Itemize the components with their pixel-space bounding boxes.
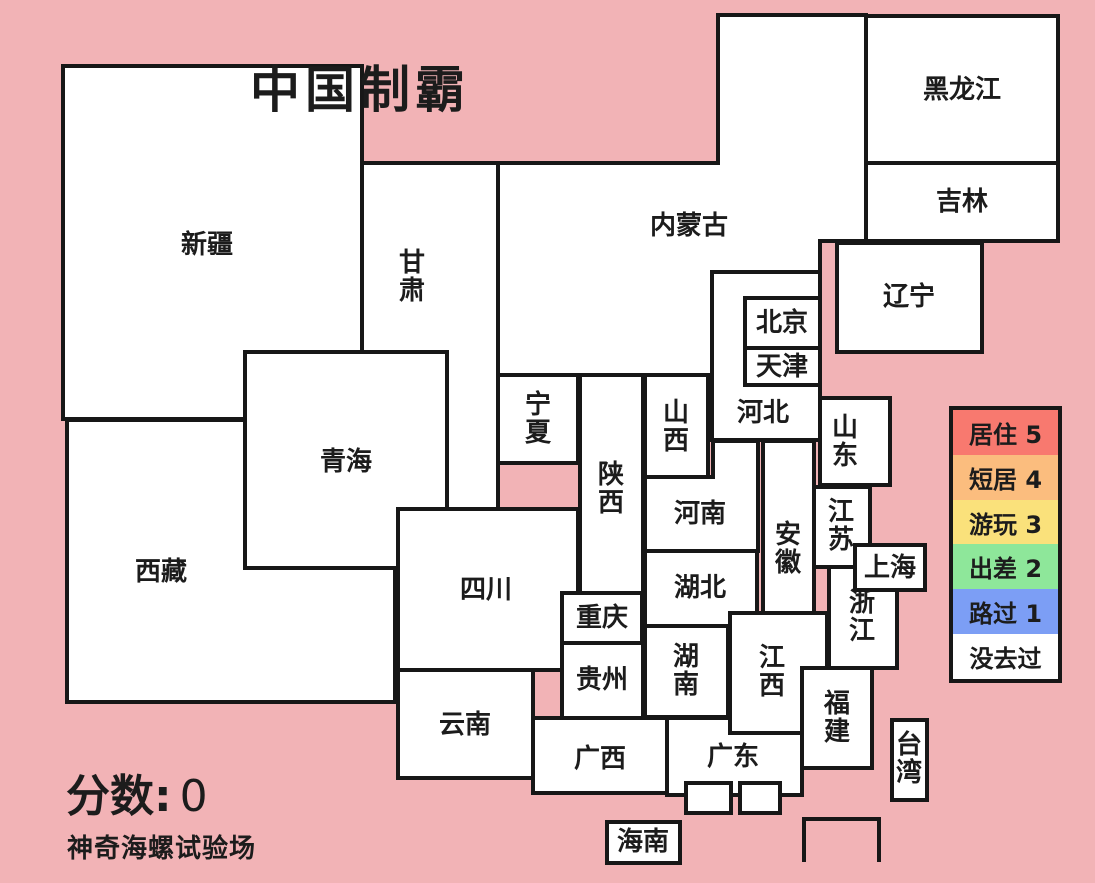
province-unlabeled-box-west[interactable] xyxy=(686,783,731,813)
province-label-gansu: 甘肃 xyxy=(399,248,425,306)
province-guizhou[interactable]: 贵州 xyxy=(562,643,643,718)
province-jilin[interactable]: 吉林 xyxy=(866,163,1058,241)
province-label-shaanxi: 陕西 xyxy=(598,460,624,518)
province-beijing[interactable]: 北京 xyxy=(745,298,820,348)
province-yunnan[interactable]: 云南 xyxy=(398,670,533,778)
province-label-qinghai: 青海 xyxy=(320,447,372,477)
province-chongqing[interactable]: 重庆 xyxy=(562,593,642,643)
province-guangxi[interactable]: 广西 xyxy=(533,718,668,793)
province-unlabeled-box-east-shape[interactable] xyxy=(740,783,780,813)
province-label-xizang: 西藏 xyxy=(135,557,187,587)
province-label-henan: 河南 xyxy=(674,499,726,529)
province-label-zhejiang: 浙江 xyxy=(849,588,875,646)
province-taiwan[interactable]: 台湾 xyxy=(892,720,927,800)
province-label-shanghai: 上海 xyxy=(864,553,916,583)
province-label-hubei: 湖北 xyxy=(674,573,726,603)
province-anhui[interactable]: 安徽 xyxy=(763,441,814,613)
province-label-jiangsu: 江苏 xyxy=(828,497,854,555)
legend-row-live-5: 居住 5 xyxy=(953,410,1058,455)
legend-row-trip-2: 出差 2 xyxy=(953,544,1058,589)
legend: 居住 5 短居 4 游玩 3 出差 2 路过 1 没去过 xyxy=(949,406,1062,683)
china-map: 甘肃西藏新疆青海内蒙古宁夏陕西山西四川河南湖北重庆贵州云南广西广东河北北京天津山… xyxy=(0,0,1095,883)
province-label-jiangxi: 江西 xyxy=(759,643,785,701)
province-label-chongqing: 重庆 xyxy=(576,602,628,633)
legend-row-never: 没去过 xyxy=(953,634,1058,679)
province-tianjin[interactable]: 天津 xyxy=(745,348,820,385)
province-label-liaoning: 辽宁 xyxy=(883,281,935,312)
province-label-fujian: 福建 xyxy=(823,689,850,747)
score-label: 分数: xyxy=(66,771,172,822)
province-ningxia[interactable]: 宁夏 xyxy=(498,375,578,463)
province-unlabeled-box-west-shape[interactable] xyxy=(686,783,731,813)
province-label-shandong: 山东 xyxy=(832,413,858,471)
province-hunan[interactable]: 湖南 xyxy=(645,626,728,717)
province-label-guizhou: 贵州 xyxy=(576,665,628,695)
province-label-taiwan: 台湾 xyxy=(896,729,922,788)
province-liaoning[interactable]: 辽宁 xyxy=(837,243,982,352)
province-label-xinjiang: 新疆 xyxy=(181,229,233,260)
province-label-neimenggu: 内蒙古 xyxy=(650,211,728,241)
province-label-hainan: 海南 xyxy=(617,827,669,857)
page-title: 中国制霸 xyxy=(0,50,720,122)
legend-row-stay-4: 短居 4 xyxy=(953,455,1058,500)
province-label-guangdong: 广东 xyxy=(707,741,759,772)
province-unlabeled-box-east[interactable] xyxy=(740,783,780,813)
province-hainan[interactable]: 海南 xyxy=(607,822,680,863)
province-label-sichuan: 四川 xyxy=(460,575,512,605)
legend-row-pass-1: 路过 1 xyxy=(953,589,1058,634)
province-label-tianjin: 天津 xyxy=(756,352,808,382)
province-sichuan[interactable]: 四川 xyxy=(398,509,578,670)
game-stage: 甘肃西藏新疆青海内蒙古宁夏陕西山西四川河南湖北重庆贵州云南广西广东河北北京天津山… xyxy=(0,0,1095,883)
province-label-ningxia: 宁夏 xyxy=(525,389,552,448)
province-shanghai[interactable]: 上海 xyxy=(855,545,925,590)
province-label-hunan: 湖南 xyxy=(673,642,699,700)
sea-box-outline xyxy=(804,819,879,862)
province-label-jilin: 吉林 xyxy=(936,187,988,217)
province-label-beijing: 北京 xyxy=(756,307,808,338)
subtitle: 神奇海螺试验场 xyxy=(67,828,256,865)
legend-row-visit-3: 游玩 3 xyxy=(953,500,1058,545)
province-label-shanxi: 山西 xyxy=(663,398,689,456)
province-fujian[interactable]: 福建 xyxy=(802,668,872,768)
province-shandong[interactable]: 山东 xyxy=(820,398,890,485)
province-shaanxi[interactable]: 陕西 xyxy=(580,375,643,593)
score-line: 分数:0 xyxy=(66,760,208,824)
province-label-heilongjiang: 黑龙江 xyxy=(923,75,1001,105)
province-label-yunnan: 云南 xyxy=(439,710,491,740)
province-label-hebei: 河北 xyxy=(737,398,789,428)
province-label-guangxi: 广西 xyxy=(574,744,626,774)
score-value: 0 xyxy=(180,771,208,822)
province-label-anhui: 安徽 xyxy=(774,520,802,578)
province-heilongjiang[interactable]: 黑龙江 xyxy=(866,16,1058,163)
province-shanxi[interactable]: 山西 xyxy=(645,375,708,477)
